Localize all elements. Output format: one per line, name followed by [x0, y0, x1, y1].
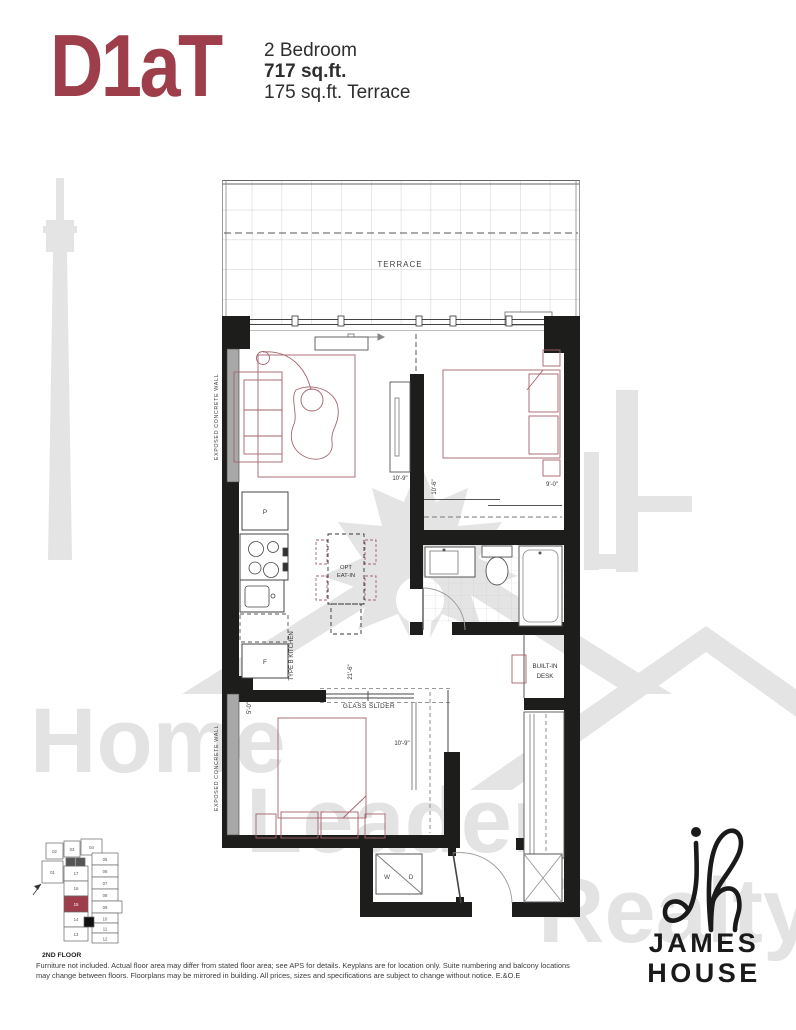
bathtub [519, 546, 562, 626]
logo-james: JAMES [649, 928, 760, 958]
arc-floor-lamp [257, 352, 324, 412]
svg-text:13: 13 [74, 932, 79, 937]
living-room [234, 352, 355, 478]
svg-text:05: 05 [103, 857, 108, 862]
living-room-builtins [315, 337, 410, 472]
built-in-desk-label2: DESK [537, 673, 555, 680]
keyplan-floor-label: 2ND FLOOR [42, 952, 81, 959]
svg-text:07: 07 [103, 881, 108, 886]
bed-1 [443, 370, 560, 458]
fridge-label: F [263, 659, 267, 666]
disclaimer: Furniture not included. Actual floor are… [36, 961, 656, 981]
skyline-watermark-icon [584, 390, 692, 572]
sideboard [315, 337, 368, 350]
glass-slider: GLASS SLIDER [320, 689, 452, 711]
svg-text:11: 11 [103, 927, 108, 932]
laundry: W D [376, 854, 422, 894]
north-arrow-icon [33, 884, 41, 895]
exposed-concrete-label-living: EXPOSED CONCRETE WALL [214, 374, 220, 460]
media-console [390, 382, 410, 472]
concrete-wall-labels: EXPOSED CONCRETE WALL EXPOSED CONCRETE W… [214, 374, 220, 811]
entry-closet [524, 854, 562, 902]
svg-text:15: 15 [74, 902, 79, 907]
cn-tower-watermark-icon [43, 178, 77, 560]
svg-text:14: 14 [74, 917, 79, 922]
terrace-label: TERRACE [377, 260, 422, 269]
area-rug [258, 355, 355, 477]
svg-text:04: 04 [89, 845, 94, 850]
keyplan: 02 03 04 01 17 16 15 14 13 05 06 07 08 0… [33, 839, 122, 959]
svg-text:06: 06 [103, 869, 108, 874]
svg-text:17: 17 [74, 871, 79, 876]
roof2-watermark-icon [470, 626, 796, 790]
nightstand [543, 460, 560, 476]
bathroom-vanity [425, 547, 475, 577]
disclaimer-line-1: Furniture not included. Actual floor are… [36, 961, 656, 971]
built-in-desk-label: BUILT-IN [533, 663, 558, 670]
bathroom [423, 545, 564, 630]
bedroom-1 [443, 350, 560, 476]
coffee-table [291, 387, 338, 459]
svg-text:10: 10 [103, 917, 108, 922]
dim-slider: 5'-0" [247, 702, 253, 714]
dim-kitchen-run: 21'-6" [348, 664, 354, 679]
svg-text:09: 09 [103, 905, 108, 910]
kitchen-type-label: TYPE B KITCHEN [289, 631, 295, 680]
hall-closet [524, 712, 564, 858]
window-wall [250, 316, 546, 340]
svg-text:08: 08 [103, 893, 108, 898]
dim-bed1-width: 10'-6" [432, 479, 438, 494]
tv [395, 398, 399, 456]
dim-bed2: 10'-9" [394, 741, 409, 747]
opt-eat-in-label: OPT [340, 565, 352, 571]
dim-bed1-length: 9'-0" [546, 482, 558, 488]
svg-text:12: 12 [103, 937, 108, 942]
exposed-concrete-label-bed2: EXPOSED CONCRETE WALL [214, 725, 220, 811]
svg-text:01: 01 [50, 870, 55, 875]
washer-label: W [384, 874, 390, 881]
svg-text:03: 03 [70, 847, 75, 852]
floorplan-canvas: Home Leader Realty TERRACE [0, 0, 796, 1030]
svg-text:02: 02 [52, 849, 57, 854]
logo-house: HOUSE [647, 958, 761, 988]
dim-living: 10'-9" [392, 476, 407, 482]
disclaimer-line-2: may change between floors. Floorplans ma… [36, 971, 656, 981]
dryer-label: D [409, 874, 414, 881]
glass-slider-label: GLASS SLIDER [343, 703, 395, 710]
pantry-label: P [263, 509, 267, 516]
opt-eat-in-label2: EAT-IN [337, 573, 355, 579]
terrace: TERRACE [222, 180, 580, 325]
svg-text:16: 16 [74, 886, 79, 891]
